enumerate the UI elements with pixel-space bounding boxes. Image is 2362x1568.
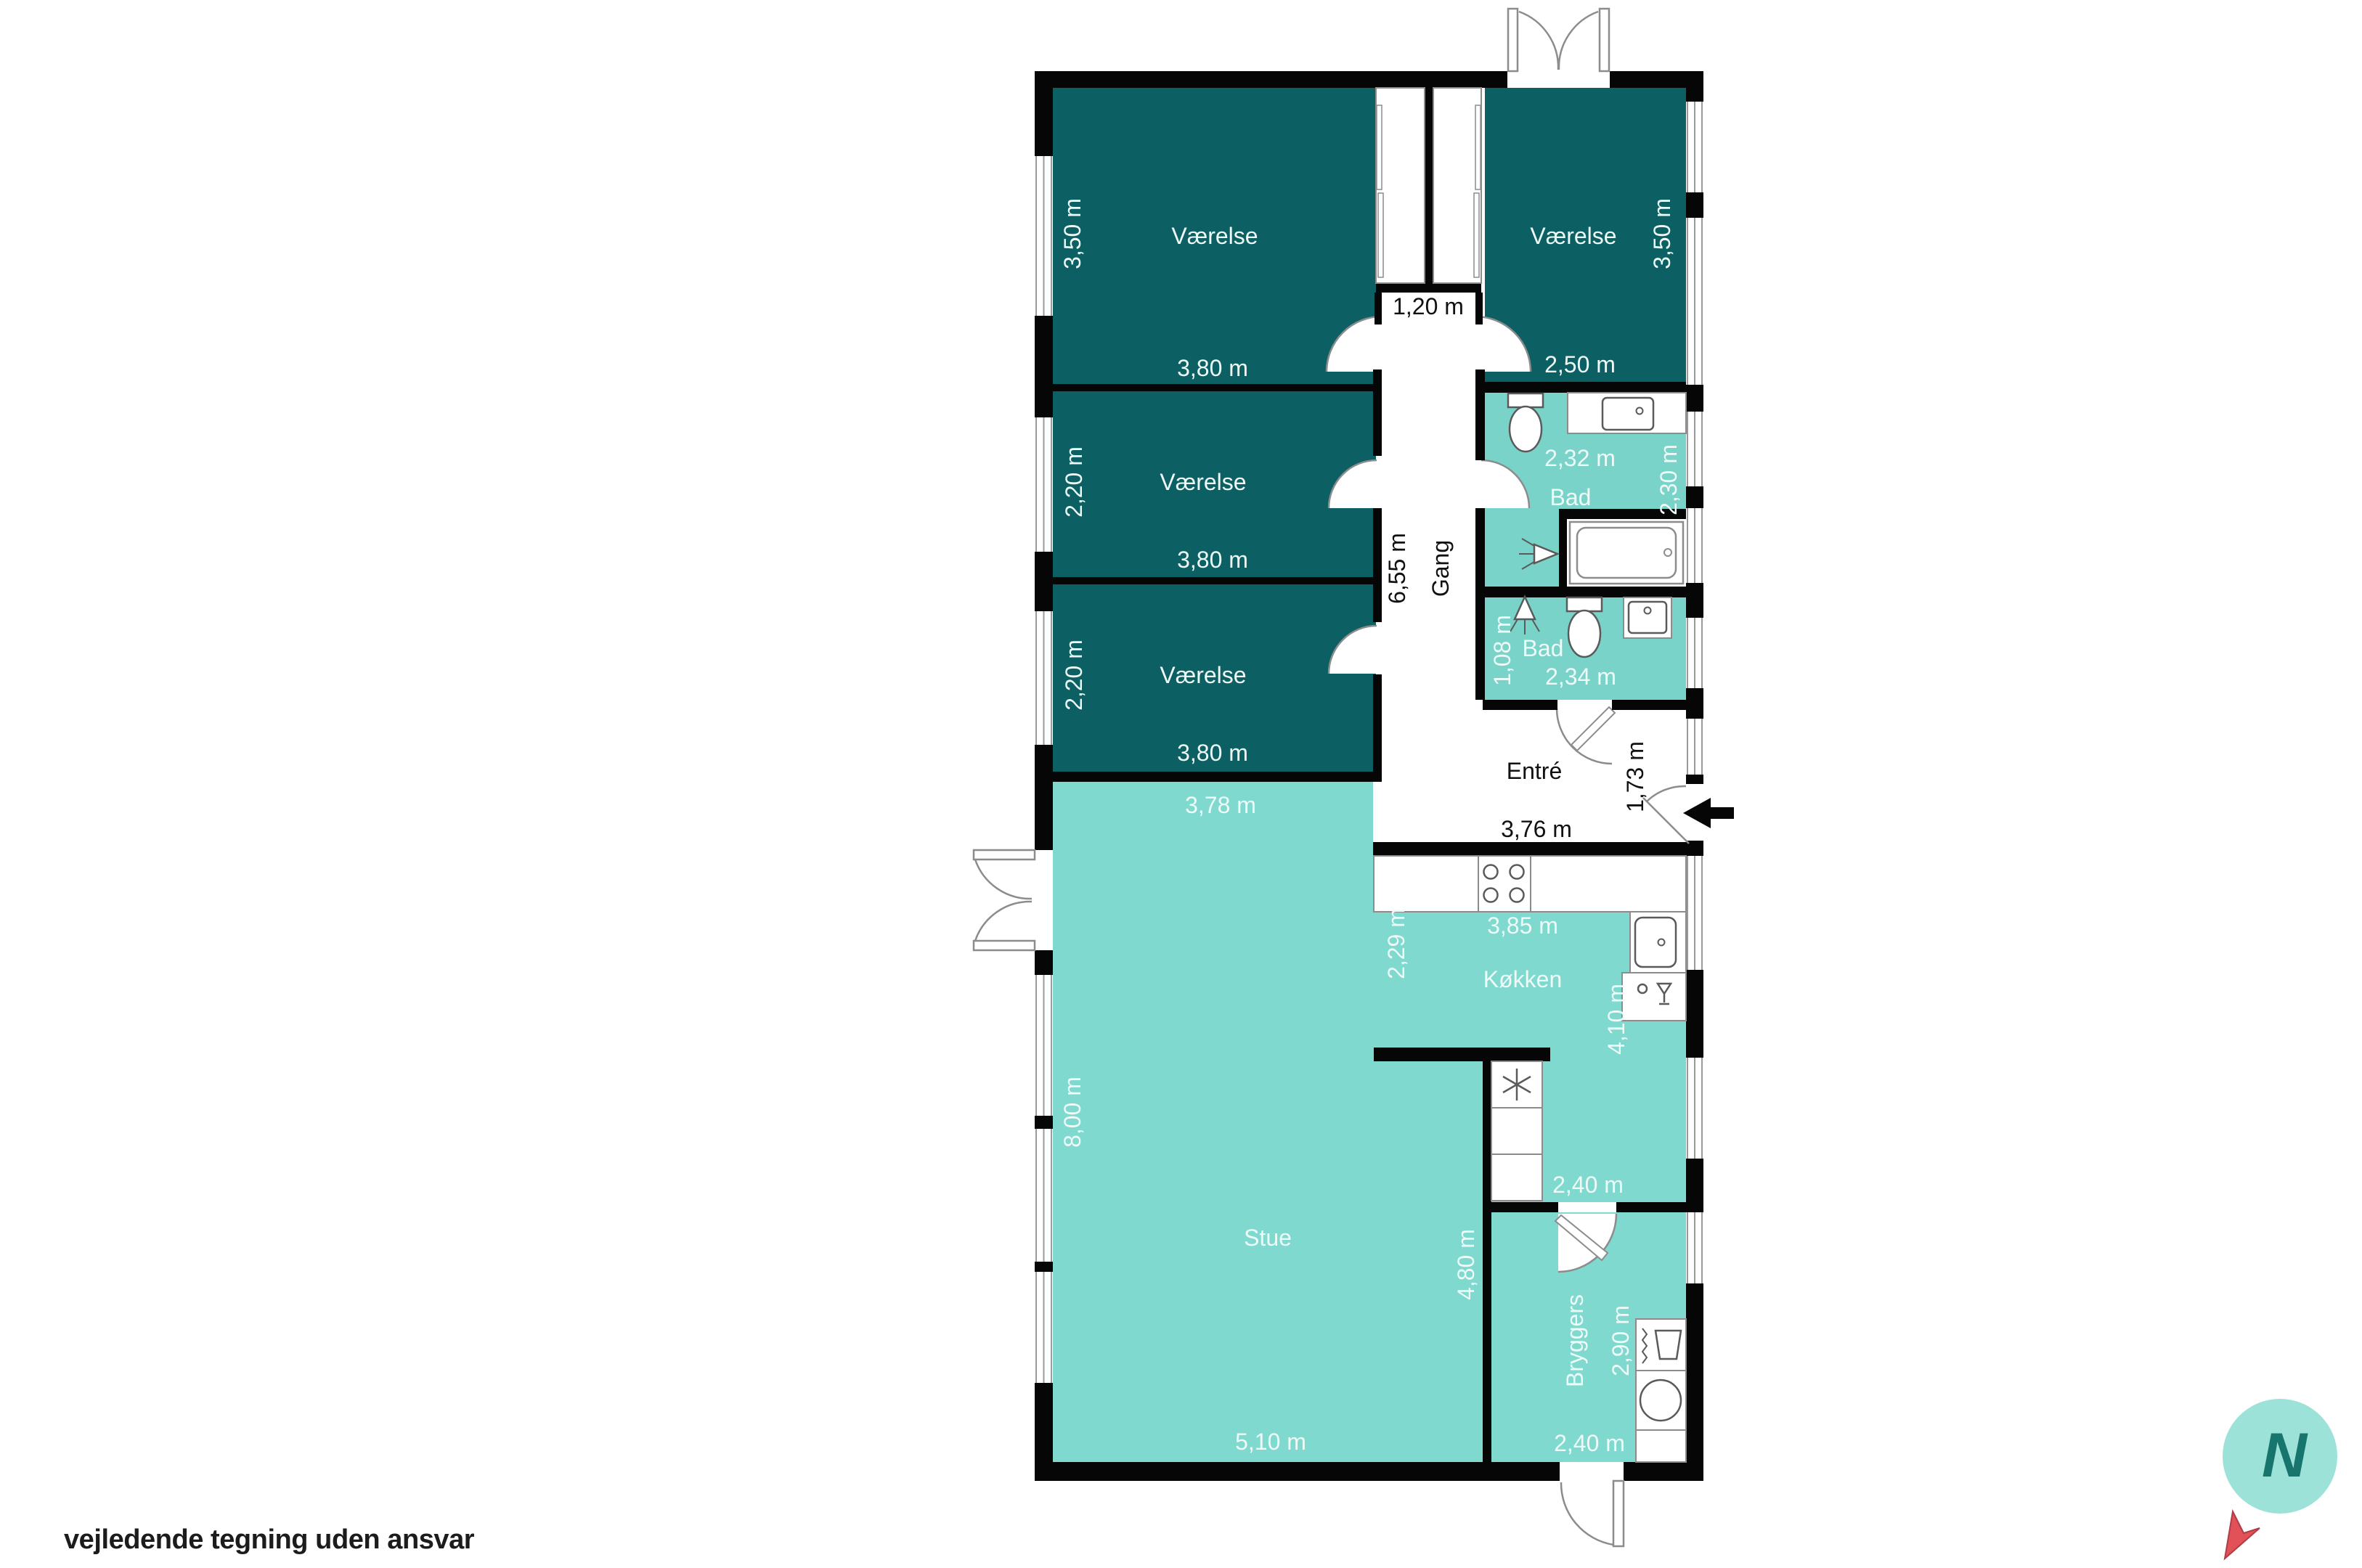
svg-text:2,90 m: 2,90 m xyxy=(1608,1305,1634,1376)
svg-text:Stue: Stue xyxy=(1244,1225,1292,1251)
svg-text:Værelse: Værelse xyxy=(1171,223,1258,249)
svg-text:2,29 m: 2,29 m xyxy=(1383,908,1409,979)
svg-text:4,10 m: 4,10 m xyxy=(1603,984,1629,1055)
svg-text:Køkken: Køkken xyxy=(1483,966,1562,992)
svg-text:4,80 m: 4,80 m xyxy=(1453,1229,1479,1300)
svg-text:2,40 m: 2,40 m xyxy=(1554,1430,1625,1456)
svg-text:8,00 m: 8,00 m xyxy=(1059,1077,1086,1148)
svg-text:Bad: Bad xyxy=(1523,635,1564,661)
svg-text:2,32 m: 2,32 m xyxy=(1544,445,1616,471)
svg-text:1,08 m: 1,08 m xyxy=(1489,615,1515,686)
svg-text:Entré: Entré xyxy=(1507,758,1562,784)
svg-text:3,85 m: 3,85 m xyxy=(1487,912,1558,939)
svg-text:3,78 m: 3,78 m xyxy=(1185,792,1256,818)
svg-text:2,20 m: 2,20 m xyxy=(1061,640,1087,711)
svg-text:5,10 m: 5,10 m xyxy=(1235,1429,1306,1455)
svg-text:3,80 m: 3,80 m xyxy=(1177,740,1248,766)
svg-text:3,80 m: 3,80 m xyxy=(1177,547,1248,573)
svg-text:1,20 m: 1,20 m xyxy=(1393,293,1464,319)
svg-text:6,55 m: 6,55 m xyxy=(1384,533,1410,604)
svg-text:3,80 m: 3,80 m xyxy=(1177,355,1248,381)
svg-text:3,76 m: 3,76 m xyxy=(1501,816,1572,842)
svg-text:Bad: Bad xyxy=(1550,484,1592,510)
svg-text:Værelse: Værelse xyxy=(1530,223,1616,249)
svg-text:N: N xyxy=(2262,1421,2308,1490)
svg-text:Bryggers: Bryggers xyxy=(1562,1294,1588,1387)
svg-text:Værelse: Værelse xyxy=(1160,662,1246,688)
svg-text:3,50 m: 3,50 m xyxy=(1649,198,1675,269)
svg-text:Gang: Gang xyxy=(1428,540,1454,597)
svg-text:2,34 m: 2,34 m xyxy=(1545,663,1616,690)
svg-text:2,30 m: 2,30 m xyxy=(1656,444,1682,515)
svg-text:Værelse: Værelse xyxy=(1160,469,1246,495)
svg-text:vejledende tegning uden ansvar: vejledende tegning uden ansvar xyxy=(64,1524,475,1555)
svg-text:2,50 m: 2,50 m xyxy=(1544,351,1616,377)
svg-text:2,20 m: 2,20 m xyxy=(1061,446,1087,518)
svg-text:1,73 m: 1,73 m xyxy=(1622,741,1648,812)
svg-text:3,50 m: 3,50 m xyxy=(1059,198,1086,269)
svg-text:2,40 m: 2,40 m xyxy=(1552,1172,1624,1198)
